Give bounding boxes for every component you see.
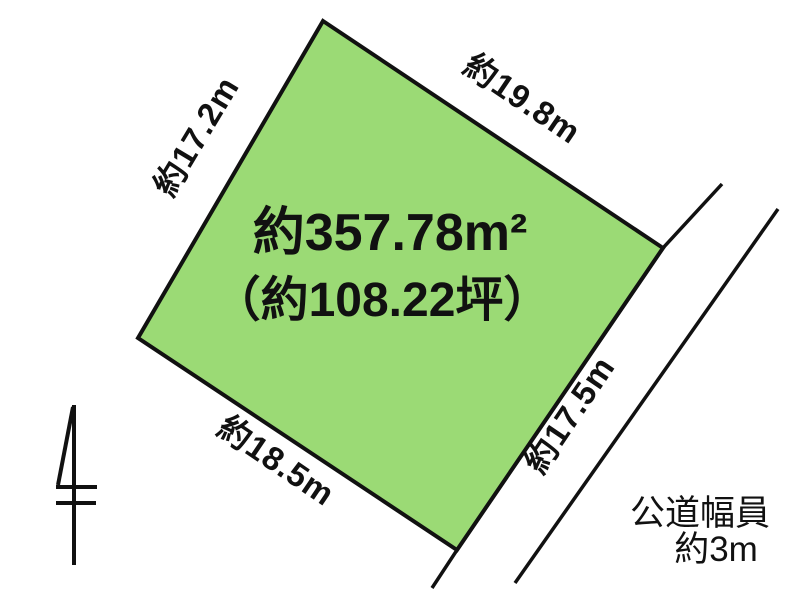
road-width-label-line2: 約3m	[674, 530, 758, 569]
road-width-label-line1: 公道幅員	[630, 494, 770, 533]
plot-diagram-canvas: 約17.2m 約19.8m 約18.5m 約17.5m 約357.78m² （約…	[0, 0, 800, 600]
parcel-area-m2-label: 約357.78m²	[253, 204, 528, 262]
parcel-area-tsubo-label: （約108.22坪）	[213, 274, 552, 327]
north-arrow-icon	[56, 405, 97, 565]
land-plot-diagram: 約17.2m 約19.8m 約18.5m 約17.5m 約357.78m² （約…	[0, 0, 800, 600]
